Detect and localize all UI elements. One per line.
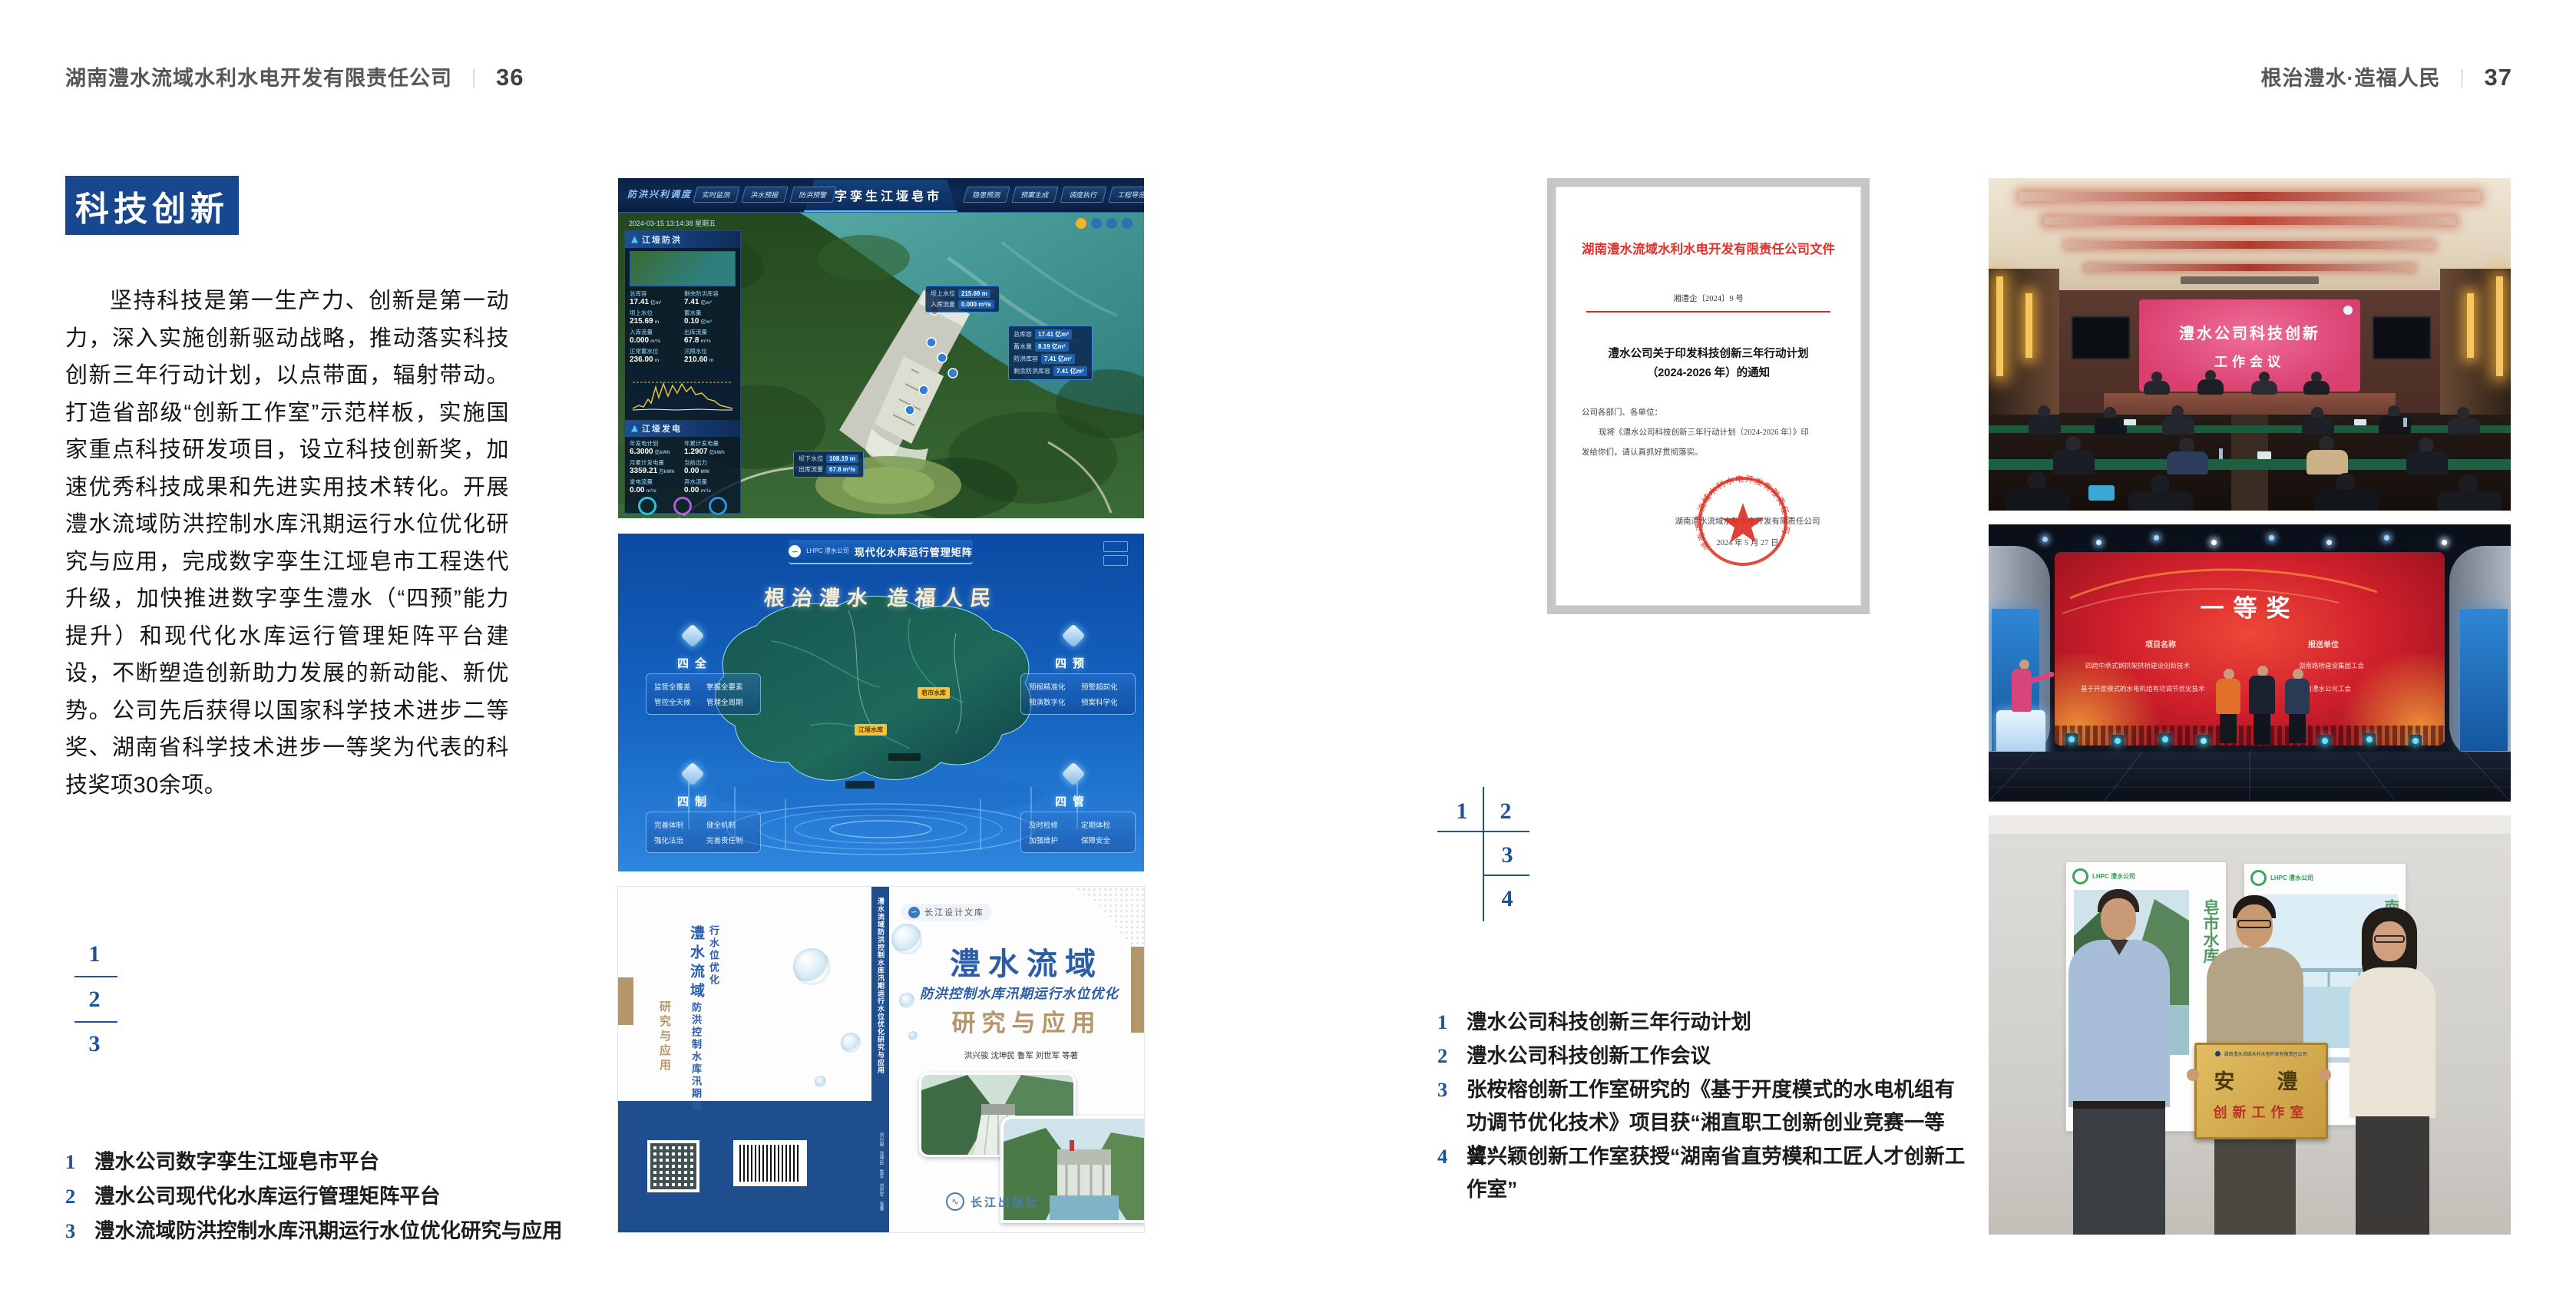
left-tab-group: 实时监测 洪水预报 防洪预警 bbox=[695, 187, 835, 203]
metric: 年发电计划6.3000亿kWh bbox=[630, 439, 681, 456]
gauge-ring bbox=[673, 497, 692, 515]
metric: 年累计发电量1.2907亿kWh bbox=[684, 439, 736, 456]
plaque-header-row: 湖南澧水流域水利水电开发有限责任公司 bbox=[2197, 1050, 2326, 1057]
caption-number: 2 bbox=[65, 1180, 94, 1213]
alert-icon[interactable] bbox=[1122, 218, 1133, 229]
matrix-panel-siquan: 监管全覆盖掌握全要素 管控全天候管理全周期 bbox=[646, 673, 761, 715]
power-metrics-grid: 年发电计划6.3000亿kWh 年累计发电量1.2907亿kWh 月累计发电量3… bbox=[630, 439, 736, 494]
matrix-panel-siyu: 预报精准化预警超前化 预演数字化预案科学化 bbox=[1020, 673, 1136, 715]
official-red-seal: 湖南澧水流域水利水电开发有限责任公司 bbox=[1692, 471, 1794, 572]
figure-index-3: 3 bbox=[1496, 842, 1519, 868]
document-red-header: 湖南澧水流域水利水电开发有限责任公司文件 bbox=[1569, 239, 1847, 257]
dashboard-top-bar: 数字孪生江垭皂市 防洪兴利调度 实时监测 洪水预报 防洪预警 隐患预测 预案生成… bbox=[618, 178, 1144, 213]
page-number-left: 36 bbox=[496, 64, 524, 91]
plaque-subtitle: 创新工作室 bbox=[2197, 1102, 2326, 1122]
caption-number: 1 bbox=[1437, 1006, 1467, 1039]
lhpc-logo-icon bbox=[2072, 868, 2088, 884]
header-divider: ｜ bbox=[2453, 69, 2472, 90]
window-button[interactable] bbox=[1103, 555, 1128, 566]
section-title-badge: 科技创新 bbox=[65, 176, 239, 235]
user-icon[interactable] bbox=[1076, 218, 1086, 229]
figure-index-1: 1 bbox=[83, 941, 106, 967]
water-bottle bbox=[2403, 418, 2407, 427]
map-marker-small[interactable] bbox=[888, 753, 921, 761]
side-screen-right bbox=[2460, 609, 2508, 751]
left-page-header: 湖南澧水流域水利水电开发有限责任公司｜36 bbox=[65, 61, 524, 91]
plaque-logo-dot bbox=[2215, 1051, 2221, 1056]
lhpc-logo-icon: ∽ bbox=[789, 545, 801, 557]
sail-icon bbox=[631, 425, 638, 432]
water-bottle bbox=[2219, 448, 2223, 459]
metric: 发电流量0.00m³/s bbox=[630, 478, 681, 494]
gauge-unit-3: 3号机组 bbox=[700, 497, 736, 518]
metric: 剩余防洪库容7.41亿m³ bbox=[684, 289, 736, 306]
metric: 汛限水位210.60m bbox=[684, 347, 736, 364]
award-col1-header: 项目名称 bbox=[2145, 638, 2176, 650]
gauge-ring bbox=[638, 497, 656, 515]
toolbar-icons bbox=[1076, 218, 1133, 229]
recipient-navy bbox=[2285, 679, 2310, 714]
award-col2-header: 报送单位 bbox=[2308, 638, 2339, 650]
figure-index-1: 1 bbox=[1450, 798, 1473, 825]
matrix-title: 现代化水库运行管理矩阵 bbox=[855, 544, 973, 559]
right-page-header: 根治澧水·造福人民｜37 bbox=[1898, 61, 2512, 91]
caption-number: 1 bbox=[65, 1146, 94, 1179]
panel-header: 江垭发电 bbox=[625, 420, 740, 437]
panel-title: 四制 bbox=[649, 793, 741, 809]
water-level-chart bbox=[630, 367, 736, 415]
library-badge: ∽ 长江设计文库 bbox=[901, 904, 992, 921]
seal-star bbox=[1721, 503, 1764, 543]
poster-logo-text: LHPC 澧水公司 bbox=[2270, 874, 2313, 882]
wall-sconce bbox=[2467, 293, 2474, 358]
tab-hazard-forecast[interactable]: 隐患预测 bbox=[963, 187, 1010, 203]
panel-title: 四全 bbox=[649, 655, 741, 671]
front-tan-strip bbox=[1131, 947, 1144, 1033]
metric: 总库容17.41亿m³ bbox=[630, 289, 681, 306]
water-droplet bbox=[891, 924, 922, 954]
document-number: 湘澧企〔2024〕9 号 bbox=[1556, 293, 1861, 304]
header-divider: ｜ bbox=[465, 69, 484, 90]
trousers bbox=[2073, 1109, 2165, 1235]
poster-logo-row: LHPC 澧水公司 bbox=[2250, 870, 2399, 886]
panel-title: 江垭发电 bbox=[642, 422, 682, 435]
figure-index-4: 4 bbox=[1496, 886, 1519, 912]
ceiling-light-cove bbox=[2019, 192, 2480, 201]
led-award-screen: 一等奖 项目名称 报送单位 四跨中承式钢拱架拱桥建设创新技术 湖南路桥建设集团工… bbox=[2055, 552, 2445, 746]
figure-award-ceremony-photo: 一等奖 项目名称 报送单位 四跨中承式钢拱架拱桥建设创新技术 湖南路桥建设集团工… bbox=[1989, 524, 2511, 802]
caption-number: 3 bbox=[65, 1215, 94, 1248]
metric: 正常蓄水位236.00m bbox=[630, 347, 681, 364]
glasses bbox=[2374, 935, 2405, 943]
innovation-studio-plaque: 湖南澧水流域水利水电开发有限责任公司 安 澧 创新工作室 bbox=[2194, 1043, 2328, 1139]
document-body-line2: 发给你们，请认真抓好贯彻落实。 bbox=[1582, 446, 1835, 458]
spine-authors: 洪兴骏 沈坤民 鲁军 刘世军 等著 bbox=[878, 1132, 885, 1217]
caption-number: 4 bbox=[1437, 1140, 1467, 1206]
stage-floor bbox=[1989, 752, 2511, 802]
metric: 弃水流量0.00m³/s bbox=[684, 478, 736, 494]
trousers bbox=[2356, 1116, 2429, 1235]
hand bbox=[2187, 1069, 2199, 1081]
laptop bbox=[2124, 419, 2136, 425]
blouse bbox=[2349, 967, 2435, 1118]
qr-code bbox=[647, 1140, 699, 1192]
publisher-name: 长江出版社 bbox=[971, 1194, 1040, 1210]
gauge-ring bbox=[709, 497, 727, 515]
metric: 入库流量0.000m³/s bbox=[630, 328, 681, 345]
matrix-panel-sizhi: 完善体制健全机制 强化法治完善责任制 bbox=[646, 812, 761, 853]
flood-metrics-grid: 总库容17.41亿m³ 剩余防洪库容7.41亿m³ 坝上水位215.69m 蓄水… bbox=[630, 289, 736, 364]
wall-sconce bbox=[1996, 276, 2003, 376]
caption-text: 澧水公司现代化水库运行管理矩阵平台 bbox=[94, 1180, 441, 1213]
tab-dispatch-execute[interactable]: 调度执行 bbox=[1060, 187, 1106, 203]
caption-item: 1 澧水公司科技创新三年行动计划 bbox=[1437, 1006, 1975, 1039]
panel-header: 江垭防洪 bbox=[625, 231, 740, 248]
metric: 蓄水量0.10亿m³ bbox=[684, 309, 736, 326]
belt bbox=[2073, 1101, 2165, 1109]
water-droplet bbox=[815, 1076, 826, 1087]
meeting-screen: 澧水公司科技创新 工作会议 bbox=[2139, 299, 2360, 392]
poster-logo-row: LHPC 澧水公司 bbox=[2072, 868, 2220, 884]
panel-title: 四管 bbox=[1027, 793, 1119, 809]
laptop bbox=[2257, 451, 2271, 459]
qr-pattern bbox=[650, 1143, 696, 1189]
caption-item: 2 澧水公司科技创新工作会议 bbox=[1437, 1040, 1975, 1073]
figure-official-document: 湖南澧水流域水利水电开发有限责任公司文件 湘澧企〔2024〕9 号 澧水公司关于… bbox=[1547, 178, 1870, 614]
award-project-2: 基于开度模式的水电机组有功调节优化技术 bbox=[2081, 684, 2205, 693]
barcode-stripes bbox=[739, 1145, 801, 1182]
plaque-header-text: 湖南澧水流域水利水电开发有限责任公司 bbox=[2224, 1050, 2306, 1057]
caption-item: 3 澧水流域防洪控制水库汛期运行水位优化研究与应用 bbox=[65, 1215, 649, 1248]
wall-tv bbox=[2072, 316, 2130, 359]
figure-digital-twin-platform: 数字孪生江垭皂市 防洪兴利调度 实时监测 洪水预报 防洪预警 隐患预测 预案生成… bbox=[618, 178, 1144, 518]
index-divider bbox=[74, 976, 117, 977]
back-tan-block bbox=[618, 977, 633, 1025]
gauge-unit-1: 1号机组 bbox=[630, 497, 665, 518]
panel-title: 四预 bbox=[1027, 655, 1119, 671]
layers-icon[interactable] bbox=[1091, 218, 1102, 229]
index-vline bbox=[1483, 787, 1484, 921]
figure-matrix-platform: ∽ LHPC 澧水公司 现代化水库运行管理矩阵 根治澧水 造福人民 四全 监管全… bbox=[618, 534, 1144, 871]
plaque-title: 安 澧 bbox=[2197, 1065, 2326, 1095]
document-title-line2: （2024-2026 年）的通知 bbox=[1571, 364, 1846, 380]
laptop bbox=[2354, 419, 2366, 425]
water-droplet bbox=[841, 1033, 861, 1053]
matrix-panel-siguan: 及时检修定期体检 加强维护保障安全 bbox=[1020, 812, 1136, 853]
recipient-suit bbox=[2249, 676, 2275, 714]
caption-number: 2 bbox=[1437, 1040, 1467, 1073]
caption-text: 澧水公司科技创新工作会议 bbox=[1467, 1040, 1711, 1073]
caption-text: 澧水公司科技创新三年行动计划 bbox=[1467, 1006, 1751, 1039]
host-figure bbox=[2012, 669, 2032, 712]
gauge-unit-2: 2号机组 bbox=[665, 497, 700, 518]
index-divider bbox=[74, 1021, 117, 1023]
book-title-sub: 防洪控制水库汛期运行水位优化 bbox=[902, 984, 1136, 1003]
map-marker-zaoshi[interactable]: 皂市水库 bbox=[918, 687, 950, 699]
magazine-spread: 湖南澧水流域水利水电开发有限责任公司｜36 科技创新 坚持科技是第一生产力、创新… bbox=[0, 0, 2576, 1306]
caption-text: 澧水流域防洪控制水库汛期运行水位优化研究与应用 bbox=[94, 1215, 563, 1248]
tab-project-tour[interactable]: 工程导览 bbox=[1108, 187, 1144, 203]
right-tab-group: 隐患预测 预案生成 调度执行 工程导览 bbox=[965, 187, 1144, 203]
slogan-text: 根治澧水·造福人民 bbox=[2261, 67, 2441, 90]
floor-grid bbox=[1989, 752, 2511, 802]
rostrum-desk bbox=[2104, 393, 2396, 416]
screen-logo-dot bbox=[2343, 306, 2353, 315]
back-vertical-tail: 研究与应用 bbox=[656, 1000, 673, 1100]
book-spine: 澧水流域防洪控制水库汛期运行水位优化研究与应用 洪兴骏 沈坤民 鲁军 刘世军 等… bbox=[871, 887, 889, 1232]
logo-text: LHPC 澧水公司 bbox=[806, 548, 849, 555]
award-title: 一等奖 bbox=[2055, 589, 2445, 623]
matrix-header: ∽ LHPC 澧水公司 现代化水库运行管理矩阵 bbox=[789, 540, 973, 564]
figure-index-3: 3 bbox=[83, 1031, 106, 1057]
turbine-gauges: 1号机组 2号机组 3号机组 bbox=[630, 497, 736, 518]
barcode bbox=[733, 1140, 807, 1186]
dashboard-datetime: 2024-03-15 13:14:38 星期五 bbox=[629, 218, 716, 228]
map-marker-small[interactable] bbox=[845, 781, 875, 789]
lhpc-logo-icon bbox=[2250, 870, 2267, 886]
downstream-callout: 坝下水位108.19 m 出库流量67.8 m³/s bbox=[793, 451, 864, 478]
wall-tv bbox=[2373, 316, 2431, 359]
tab-flood-forecast[interactable]: 洪水预报 bbox=[741, 187, 788, 203]
caption-item: 2 澧水公司现代化水库运行管理矩阵平台 bbox=[65, 1180, 649, 1213]
tab-flood-warning[interactable]: 防洪预警 bbox=[789, 187, 836, 203]
tab-plan-generation[interactable]: 预案生成 bbox=[1011, 187, 1058, 203]
figure-studio-group-photo: LHPC 澧水公司 皂市水库 LHPC 澧水公司 bbox=[1989, 815, 2511, 1235]
dam-thumbnail bbox=[630, 251, 736, 286]
library-badge-text: 长江设计文库 bbox=[924, 906, 984, 918]
wall-sconce bbox=[2025, 293, 2032, 358]
figure-book-cover: 澧水流域防洪控制水库汛期运行水位优化研究与应用 洪兴骏 沈坤民 鲁军 刘世军 等… bbox=[618, 887, 1144, 1232]
ceiling-edge bbox=[1989, 815, 2511, 834]
map-marker-jiangya[interactable]: 江垭水库 bbox=[855, 724, 887, 736]
publisher-logo: ∿ bbox=[946, 1192, 964, 1211]
spine-title: 澧水流域防洪控制水库汛期运行水位优化研究与应用 bbox=[876, 898, 886, 1128]
screen-title-line2: 工作会议 bbox=[2139, 351, 2360, 370]
metric: 出库流量67.8m³/s bbox=[684, 328, 736, 345]
metric: 当前出力0.00MW bbox=[684, 458, 736, 475]
back-vertical-title: 澧水流域防洪控制水库汛期运行水位优化 bbox=[686, 925, 721, 1113]
book-title-tail: 研究与应用 bbox=[919, 1003, 1134, 1038]
ceiling-light-cove bbox=[2044, 217, 2455, 225]
window-button[interactable] bbox=[1103, 541, 1128, 552]
document-paper: 湖南澧水流域水利水电开发有限责任公司文件 湘澧企〔2024〕9 号 澧水公司关于… bbox=[1556, 187, 1861, 606]
caption-text: 澧水公司数字孪生江垭皂市平台 bbox=[94, 1146, 379, 1179]
reservoir-info-callout: 总库容17.41 亿m³ 蓄水量8.19 亿m³ 防洪库容7.41 亿m³ 剩余… bbox=[1008, 326, 1093, 380]
document-salutation: 公司各部门、各单位： bbox=[1582, 406, 1662, 418]
figure-innovation-meeting-photo: 澧水公司科技创新 工作会议 bbox=[1989, 178, 2511, 511]
glasses bbox=[2237, 920, 2271, 928]
figure-index-2: 2 bbox=[83, 987, 106, 1013]
index-hline bbox=[1483, 875, 1529, 876]
caption-text: 曾兴颖创新工作室获授“湖南省直劳模和工匠人才创新工作室” bbox=[1467, 1140, 1975, 1206]
metric: 月累计发电量3359.21万kWh bbox=[630, 458, 681, 475]
locate-icon[interactable] bbox=[1106, 218, 1117, 229]
flood-data-panel: 江垭防洪 总库容17.41亿m³ 剩余防洪库容7.41亿m³ 坝上水位215.6… bbox=[624, 230, 741, 514]
document-body-line1: 现将《澧水公司科技创新三年行动计划（2024-2026 年）》印 bbox=[1599, 426, 1844, 438]
screen-title-line1: 澧水公司科技创新 bbox=[2139, 321, 2360, 343]
hand bbox=[2319, 1069, 2331, 1081]
tab-realtime-monitor[interactable]: 实时监测 bbox=[693, 187, 739, 203]
polo-shirt bbox=[2068, 940, 2170, 1107]
body-paragraph: 坚持科技是第一生产力、创新是第一动力，深入实施创新驱动战略，推动落实科技创新三年… bbox=[65, 283, 509, 804]
document-red-rule bbox=[1586, 311, 1830, 312]
index-hline bbox=[1437, 831, 1529, 832]
water-droplet bbox=[793, 948, 830, 985]
poster-logo-text: LHPC 澧水公司 bbox=[2092, 872, 2135, 881]
caption-item: 1 澧水公司数字孪生江垭皂市平台 bbox=[65, 1146, 649, 1179]
face bbox=[2101, 898, 2136, 940]
document-title-line1: 澧水公司关于印发科技创新三年行动计划 bbox=[1571, 345, 1846, 361]
company-name: 湖南澧水流域水利水电开发有限责任公司 bbox=[65, 67, 452, 90]
book-title-main: 澧水流域 bbox=[919, 939, 1134, 984]
award-org-1: 湖南路桥建设集团工会 bbox=[2299, 661, 2364, 670]
sail-icon bbox=[631, 236, 638, 243]
award-project-1: 四跨中承式钢拱架拱桥建设创新技术 bbox=[2085, 661, 2190, 670]
system-label: 防洪兴利调度 bbox=[627, 187, 692, 200]
changjiang-design-logo: ∽ bbox=[908, 907, 920, 918]
book-authors: 洪兴骏 沈坤民 鲁军 刘世军 等著 bbox=[910, 1050, 1133, 1061]
water-droplet bbox=[908, 1031, 918, 1040]
ceiling-vent bbox=[2181, 276, 2319, 284]
figure-index-2: 2 bbox=[1494, 798, 1517, 825]
caption-item: 4 曾兴颖创新工作室获授“湖南省直劳模和工匠人才创新工作室” bbox=[1437, 1140, 1975, 1206]
wall-sconce bbox=[2496, 276, 2503, 376]
metric: 坝上水位215.69m bbox=[630, 309, 681, 326]
publisher-block: ∿ 长江出版社 bbox=[916, 1192, 1070, 1211]
ceiling-light-cove bbox=[2085, 264, 2414, 271]
panel-title: 江垭防洪 bbox=[642, 233, 682, 246]
ceiling-light-cove bbox=[2065, 241, 2434, 249]
water-droplet bbox=[899, 993, 914, 1008]
matrix-slogan: 根治澧水 造福人民 bbox=[618, 581, 1144, 611]
upstream-callout: 坝上水位215.69 m 入库流量0.000 m³/s bbox=[925, 286, 1000, 312]
tissue-box bbox=[2088, 485, 2115, 501]
green-table-row bbox=[1989, 425, 2511, 433]
page-number-right: 37 bbox=[2485, 64, 2512, 91]
recipient-orange bbox=[2216, 679, 2240, 714]
